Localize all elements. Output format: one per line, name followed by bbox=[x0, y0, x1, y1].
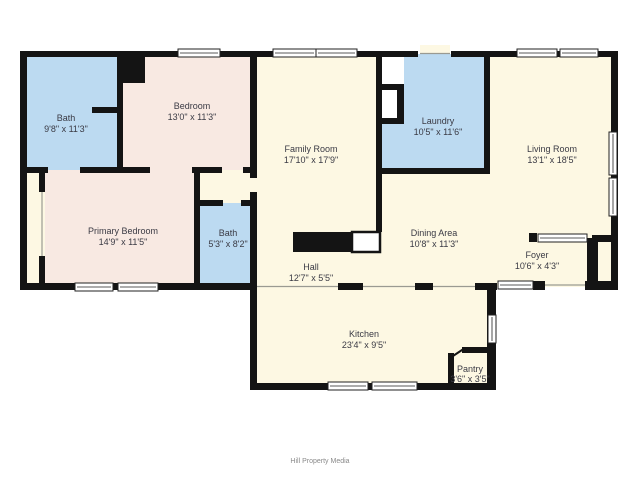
floor-fills bbox=[23, 45, 615, 387]
room-label-living-room: Living Room bbox=[527, 144, 577, 154]
chimney-block bbox=[120, 54, 145, 83]
wall-segment bbox=[475, 283, 497, 290]
wall-segment bbox=[376, 168, 490, 174]
laundry-door-landing bbox=[420, 45, 450, 54]
room-dims-living-room: 13'1" x 18'5" bbox=[527, 155, 576, 165]
floor-plan-page: Bath 9'8" x 11'3" Bedroom 13'0" x 11'3" … bbox=[0, 0, 640, 480]
room-label-bedroom: Bedroom bbox=[174, 101, 211, 111]
wall-segment bbox=[80, 167, 150, 173]
footer-credit: Hill Property Media bbox=[290, 458, 349, 465]
wall-segment bbox=[376, 174, 382, 232]
room-label-kitchen: Kitchen bbox=[349, 329, 379, 339]
room-label-laundry: Laundry bbox=[422, 116, 455, 126]
wall-segment bbox=[39, 170, 45, 192]
room-label-dining-area: Dining Area bbox=[411, 228, 458, 238]
wall-segment bbox=[250, 192, 257, 287]
room-label-bath-small: Bath bbox=[219, 228, 238, 238]
wall-segment bbox=[250, 283, 257, 390]
room-dims-bath-upper: 9'8" x 11'3" bbox=[44, 124, 88, 134]
room-dims-bedroom: 13'0" x 11'3" bbox=[168, 112, 217, 122]
floor-plan: Bath 9'8" x 11'3" Bedroom 13'0" x 11'3" … bbox=[0, 0, 640, 480]
room-label-bath-upper: Bath bbox=[57, 113, 76, 123]
wall-segment bbox=[338, 283, 363, 290]
wall-segment bbox=[585, 281, 618, 290]
wall-segment bbox=[484, 54, 490, 174]
wall-segment bbox=[250, 54, 257, 178]
wall-segment bbox=[194, 200, 200, 288]
laundry-closet-b-fill bbox=[379, 88, 400, 121]
room-label-primary-bedroom: Primary Bedroom bbox=[88, 226, 158, 236]
wall-segment bbox=[448, 353, 454, 390]
wall-segment bbox=[376, 51, 382, 174]
fireplace bbox=[293, 232, 352, 252]
room-dims-foyer: 10'6" x 4'3" bbox=[515, 261, 559, 271]
wall-segment bbox=[39, 256, 45, 285]
room-dims-primary-bedroom: 14'9" x 11'5" bbox=[99, 237, 148, 247]
wall-segment bbox=[533, 281, 545, 290]
room-label-pantry: Pantry bbox=[457, 364, 484, 374]
room-label-hall: Hall bbox=[303, 262, 319, 272]
wall-segment bbox=[376, 84, 404, 90]
hearth bbox=[352, 232, 380, 252]
room-dims-pantry: 3'6" x 3'5" bbox=[450, 374, 489, 384]
room-dims-family-room: 17'10" x 17'9" bbox=[284, 155, 338, 165]
room-dims-kitchen: 23'4" x 9'5" bbox=[342, 340, 386, 350]
room-dims-laundry: 10'5" x 11'6" bbox=[414, 127, 463, 137]
room-dims-hall: 12'7" x 5'5" bbox=[289, 273, 333, 283]
wall-segment bbox=[529, 233, 537, 242]
room-label-family-room: Family Room bbox=[284, 144, 337, 154]
room-label-foyer: Foyer bbox=[525, 250, 548, 260]
room-dims-bath-small: 5'3" x 8'2" bbox=[208, 239, 247, 249]
wall-segment bbox=[587, 238, 598, 288]
wall-segment bbox=[376, 118, 404, 124]
wall-segment bbox=[415, 283, 433, 290]
wall-segment bbox=[462, 347, 487, 353]
room-dims-dining-area: 10'8" x 11'3" bbox=[410, 239, 459, 249]
wall-segment bbox=[92, 107, 117, 113]
laundry-closet-a-fill bbox=[379, 54, 404, 88]
